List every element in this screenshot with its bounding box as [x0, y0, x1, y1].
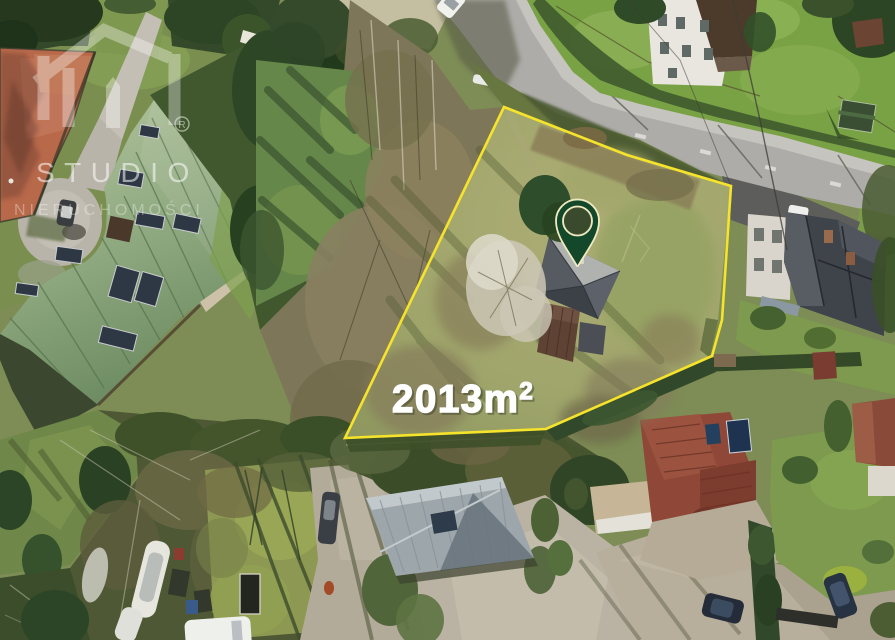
- svg-text:NIERUCHOMOŚCI: NIERUCHOMOŚCI: [14, 200, 204, 219]
- svg-text:2013m2: 2013m2: [392, 378, 534, 421]
- svg-text:R: R: [178, 120, 185, 131]
- svg-text:STUDIO: STUDIO: [36, 157, 199, 188]
